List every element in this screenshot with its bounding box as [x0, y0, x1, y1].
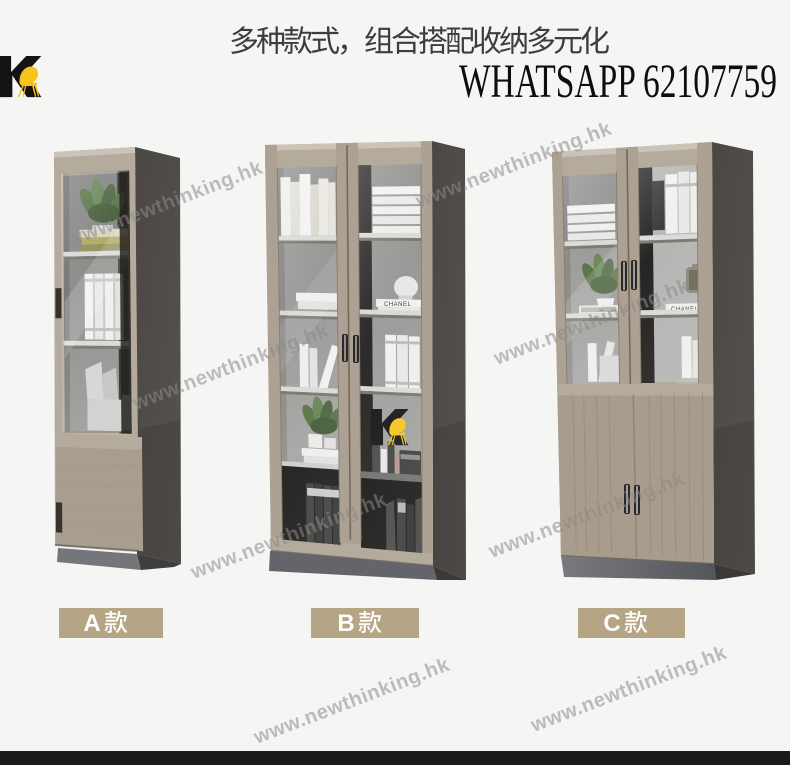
svg-text:C: C	[603, 610, 620, 637]
svg-text:WHATSAPP 62107759: WHATSAPP 62107759	[459, 55, 777, 108]
svg-text:B: B	[337, 610, 354, 637]
svg-text:A: A	[83, 610, 100, 637]
